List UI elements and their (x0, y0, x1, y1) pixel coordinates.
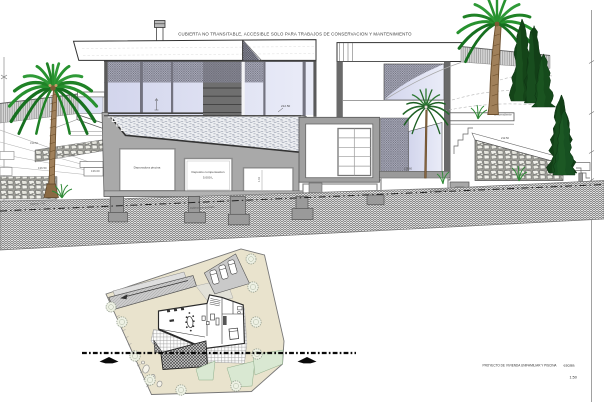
svg-text:escala: escala (564, 363, 575, 367)
svg-text:136.00: 136.00 (91, 169, 100, 173)
svg-text:Depuradora piscina: Depuradora piscina (134, 166, 161, 170)
svg-text:190.50: 190.50 (30, 141, 38, 145)
svg-text:5.000 L: 5.000 L (203, 176, 214, 180)
svg-text:212.50: 212.50 (501, 136, 509, 140)
svg-text:190.00: 190.00 (57, 145, 65, 149)
svg-text:136.50: 136.50 (38, 166, 47, 170)
svg-text:PROYECTO DE VIVIENDA UNIFAMILI: PROYECTO DE VIVIENDA UNIFAMILIAR Y PISCI… (483, 363, 558, 367)
svg-text:1.92: 1.92 (257, 176, 261, 182)
svg-text:Deposito compensacion: Deposito compensacion (191, 170, 224, 174)
svg-text:Terreno natural: Terreno natural (430, 188, 449, 193)
svg-text:136.60: 136.60 (404, 167, 412, 171)
svg-text:Relleno / 7%: Relleno / 7% (30, 201, 46, 206)
svg-text:CUBIERTA NO TRANSITABLE, ACCES: CUBIERTA NO TRANSITABLE, ACCESIBLE SOLO … (178, 32, 412, 37)
svg-text:212.50: 212.50 (281, 104, 291, 108)
svg-text:1:50: 1:50 (570, 376, 577, 380)
